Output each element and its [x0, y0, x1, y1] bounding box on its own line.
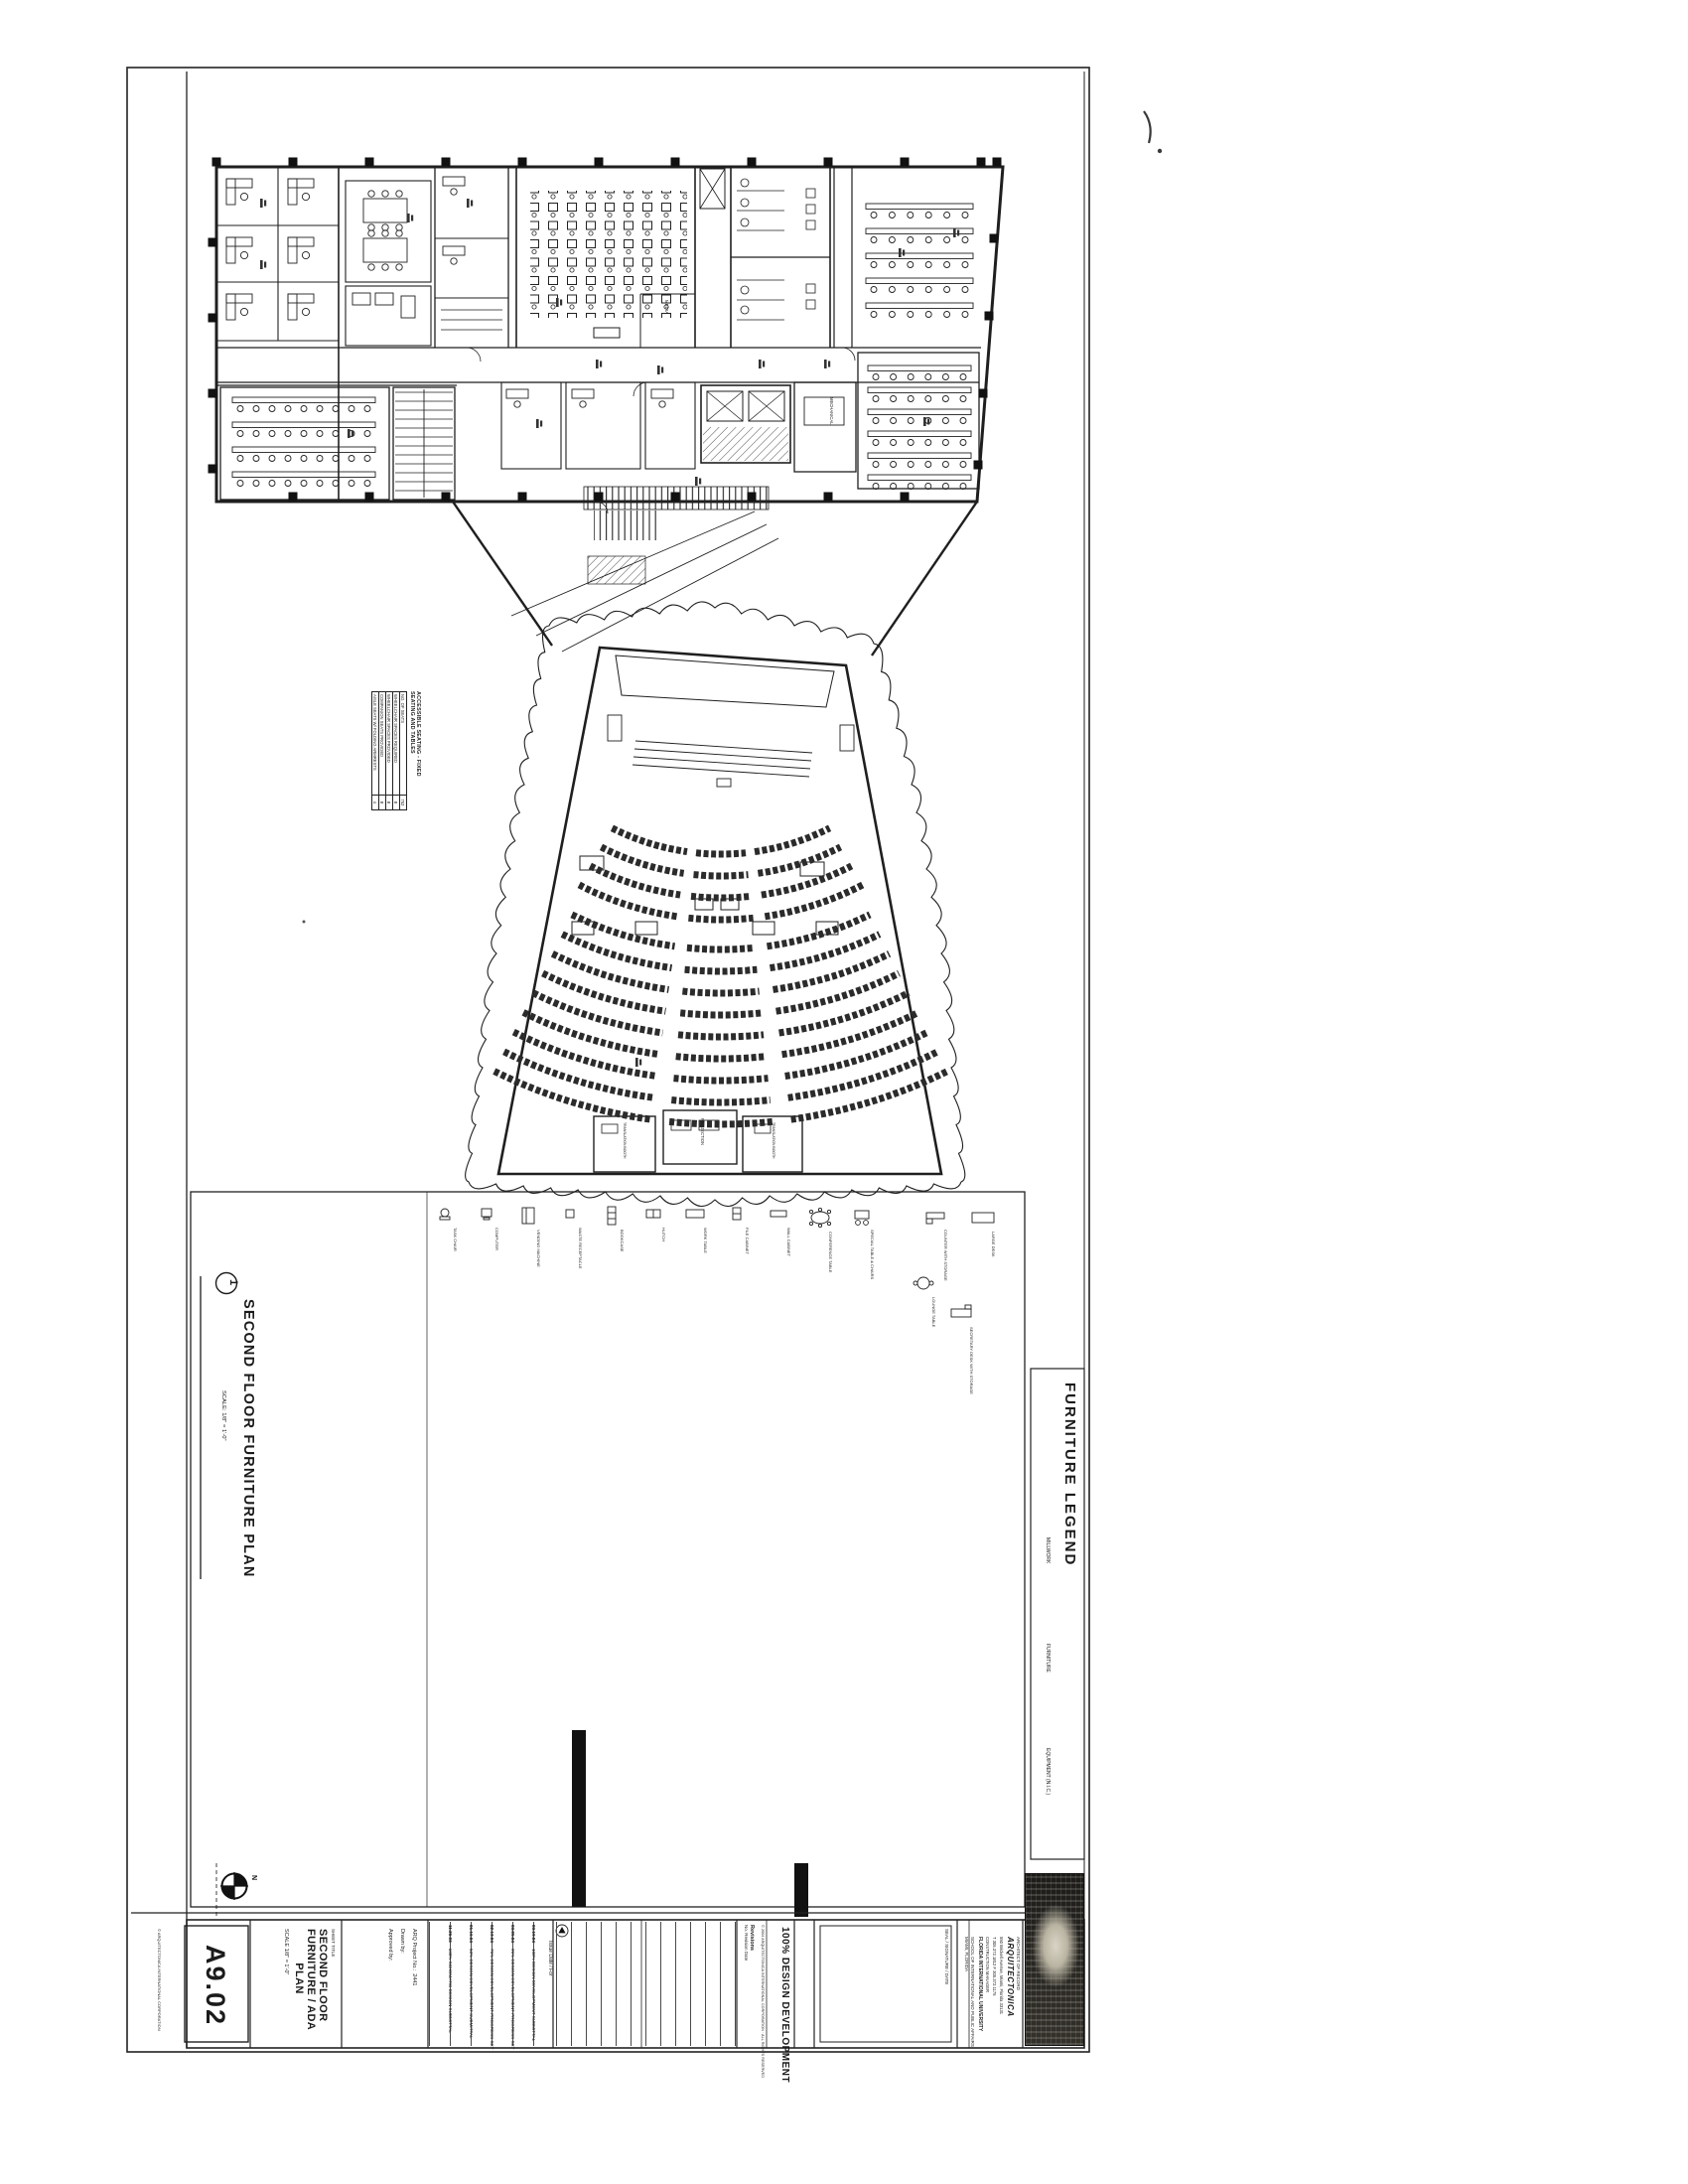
ada-table-grid: NO. OF SEATS752WHEELCHAIR SPACES REQUIRE… [371, 691, 407, 810]
revisions-box: Revisions No. Revision Date [744, 1925, 755, 2044]
issue-date: 02.13.04 [490, 1925, 494, 1943]
legend-item-label: VENDING MACHINE [536, 1230, 541, 1267]
sheet-title-line: FURNITURE / ADA [305, 1929, 317, 2043]
room-label: TRANSLATION BOOTH [772, 1122, 775, 1159]
plan-scale-text: SCALE: 1/8" = 1'-0" [220, 1390, 226, 1441]
auditorium-seating [494, 828, 947, 1124]
ada-table-row: COMPANION SEATS PROVIDED8 [378, 692, 385, 810]
legend-item-label: TASK CHAIR [453, 1228, 458, 1251]
legend-item-label: WASTE RECEPTACLE [578, 1228, 583, 1269]
revision-columns: No. Revision Date [744, 1925, 749, 2044]
sheet-title-line: SECOND FLOOR [317, 1929, 329, 2043]
room-label: MEDIA [664, 300, 669, 314]
auditorium [498, 648, 941, 1174]
issue-header: Issue Date / For [546, 1941, 552, 1976]
ada-table-row: AISLE SEATS W/ FOLDING ARMRESTS4 [371, 692, 378, 810]
issue-entry: 01.16.0450% DESIGN DEVELOPMENT SUBMITTAL [469, 1925, 474, 2039]
construction-manager-label: CONSTRUCTION MANAGER [984, 1937, 989, 1992]
architect-name: ARQUITECTONICA [1006, 1937, 1015, 2017]
legend-item [646, 1210, 660, 1218]
ada-label: AISLE SEATS W/ FOLDING ARMRESTS [371, 692, 378, 796]
ada-table-title-1: ACCESSIBLE SEATING - FIXED [415, 691, 421, 838]
project-location: MIAMI, FLORIDA [964, 1937, 969, 1971]
legend-item [914, 1277, 933, 1289]
legend-category: MILLWORK [1045, 1537, 1051, 1564]
room-tag-marks [260, 199, 959, 1067]
room-label: PROJECTION [700, 1118, 705, 1145]
issue-label: 95% DESIGN DEVELOPMENT PROGRESS SET [510, 1949, 515, 2050]
lobby-terrace [453, 487, 977, 655]
architect-phone: T 305.372.1812 F 305.372.1175 [991, 1937, 996, 1995]
issue-entry: 03.19.04100% DESIGN DEVELOPMENT SUBMITTA… [531, 1925, 536, 2041]
legend-item [482, 1209, 492, 1220]
north-arrow-icon: N [216, 1863, 257, 1917]
furniture-legend-strip [131, 1192, 1084, 1917]
scanned-drawing-sheet: TASK CHAIRCOMPUTERVENDING MACHINEWASTE R… [0, 0, 1688, 2184]
plan-title: 1 SECOND FLOOR FURNITURE PLAN SCALE: 1/8… [201, 1273, 256, 1580]
legend-item [951, 1305, 971, 1317]
architect-role: ARCHITECT OF RECORD [1016, 1937, 1021, 1990]
room-label: TRANSLATION BOOTH [623, 1122, 627, 1159]
legend-item [686, 1210, 704, 1218]
issue-date: 11.26.03 [448, 1925, 453, 1943]
ada-table-row: NO. OF SEATS752 [399, 692, 406, 810]
ada-label: WHEELCHAIR SPACES PROVIDED [385, 692, 392, 796]
project-number-box: ARQ Project No.: 2441 Drawn by: Approved… [387, 1929, 417, 2043]
drawn-by-label: Drawn by: [399, 1929, 405, 2043]
legend-category: FURNITURE [1045, 1644, 1051, 1674]
issue-entry: 03.05.0495% DESIGN DEVELOPMENT PROGRESS … [510, 1925, 515, 2049]
ada-value: 8 [378, 795, 385, 809]
ada-label: COMPANION SEATS PROVIDED [378, 692, 385, 796]
issue-date: 01.16.04 [469, 1925, 474, 1943]
issue-date: 03.05.04 [510, 1925, 515, 1943]
legend-item [522, 1208, 534, 1224]
ada-label: NO. OF SEATS [399, 692, 406, 796]
legend-item-label: HUTCH [661, 1228, 666, 1241]
legend-item [771, 1211, 786, 1217]
project-no-line: ARQ Project No.: 2441 [411, 1929, 417, 2043]
legend-item [608, 1207, 616, 1225]
legend-item-label: COUNTER WITH STORAGE [943, 1230, 948, 1281]
legend-item-label: COMPUTER [494, 1228, 499, 1250]
ada-value: 8 [392, 795, 399, 809]
issue-label: 100% DESIGN DEVELOPMENT SUBMITTAL [531, 1949, 536, 2041]
legend-category: EQUIPMENT (N.I.C.) [1045, 1748, 1051, 1795]
legend-item-label: LARGE DESK [991, 1232, 996, 1257]
revisions-label: Revisions [749, 1925, 755, 2044]
legend-item-label: WORK TABLE [703, 1228, 708, 1253]
submission-phase: 100% DESIGN DEVELOPMENT [779, 1927, 791, 2083]
legend-item [926, 1213, 944, 1224]
project-owner: FLORIDA INTERNATIONAL UNIVERSITY [976, 1937, 982, 2031]
plan-title-text: SECOND FLOOR FURNITURE PLAN [240, 1299, 256, 1578]
edge-copyright-note: © ARQUITECTONICA INTERNATIONAL CORPORATI… [156, 1929, 161, 2031]
ada-value: 4 [371, 795, 378, 809]
legend-item [855, 1211, 869, 1225]
ada-label: WHEELCHAIR SPACES REQUIRED [392, 692, 399, 796]
sheet-scale: SCALE 1/8" = 1'-0" [283, 1929, 289, 2043]
legend-item-label: FILE CABINET [745, 1228, 750, 1254]
legend-item [566, 1210, 574, 1218]
ada-table-row: WHEELCHAIR SPACES PROVIDED8 [385, 692, 392, 810]
issue-entry: 11.26.03100% SCHEMATIC DESIGN SUBMITTAL [448, 1925, 453, 2033]
sheet-title-line: PLAN [293, 1929, 305, 2028]
issue-label: 75% DESIGN DEVELOPMENT PROGRESS SET [490, 1949, 494, 2050]
issue-entry: 02.13.0475% DESIGN DEVELOPMENT PROGRESS … [490, 1925, 494, 2049]
legend-item-label: SPECIAL TABLE & CHAIRS [870, 1230, 875, 1279]
sheet-title-box: SHEET TITLE SECOND FLOOR FURNITURE / ADA… [283, 1929, 336, 2043]
legend-item-label: WALL CABINET [786, 1228, 791, 1257]
sheet-title-label: SHEET TITLE [331, 1929, 336, 2043]
room-label: MECHANICAL [829, 397, 834, 425]
legend-item [733, 1208, 741, 1220]
legend-item [972, 1213, 994, 1223]
ada-value: 752 [399, 795, 406, 809]
floor-plan-drawing: TASK CHAIRCOMPUTERVENDING MACHINEWASTE R… [0, 0, 1688, 2184]
legend-item [809, 1208, 830, 1227]
copyright-line: © 2004 ARQUITECTONICA INTERNATIONAL CORP… [761, 1925, 765, 2078]
seal-label: SEAL / SIGNATURE / DATE [944, 1929, 949, 1984]
legend-item-label: LOUNGE TABLE [931, 1297, 936, 1328]
legend-item [440, 1209, 450, 1220]
plan-detail-number: 1 [227, 1279, 239, 1285]
legend-item-label: SECRETARY DESK WITH STORAGE [969, 1327, 974, 1394]
north-label: N [250, 1875, 257, 1880]
sheet-number: A9.02 [200, 1945, 230, 2026]
legend-item-label: CONFERENCE TABLE [828, 1232, 833, 1273]
ada-seating-table: ACCESSIBLE SEATING - FIXED SEATING AND T… [371, 691, 421, 838]
project-name: SCHOOL OF INTERNATIONAL AND PUBLIC AFFAI… [970, 1937, 975, 2047]
issue-date: 03.19.04 [531, 1925, 536, 1943]
project-photo [1025, 1873, 1084, 2046]
issue-label: 50% DESIGN DEVELOPMENT SUBMITTAL [469, 1949, 474, 2039]
ada-table-row: WHEELCHAIR SPACES REQUIRED8 [392, 692, 399, 810]
issue-label: 100% SCHEMATIC DESIGN SUBMITTAL [448, 1949, 453, 2033]
ada-value: 8 [385, 795, 392, 809]
legend-item-label: BOOKCASE [620, 1230, 625, 1252]
revision-table-rules [556, 1922, 737, 2046]
architect-address: 550 Brickell Avenue, Miami, Florida 3313… [998, 1937, 1003, 2014]
approved-by-label: Approved by: [387, 1929, 393, 2043]
legend-titles: FURNITURE LEGEND MILLWORK FURNITURE EQUI… [1045, 1383, 1078, 1795]
legend-title: FURNITURE LEGEND [1061, 1383, 1078, 1566]
